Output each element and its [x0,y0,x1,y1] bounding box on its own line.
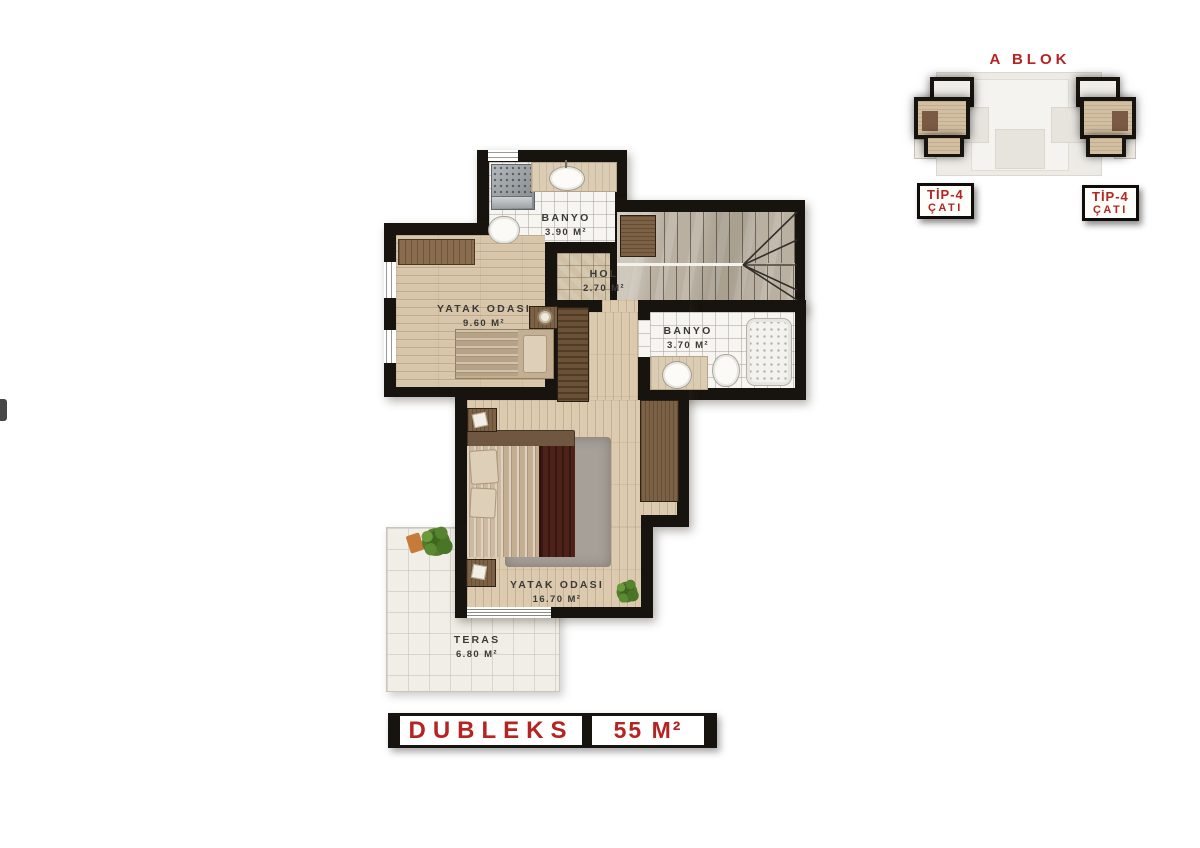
plan-type-box: DUBLEKS [400,716,582,745]
room-area: 3.70 M² [664,340,713,352]
room-name: YATAK ODASI [510,579,604,592]
block-overview: A BLOK TİP-4 [900,40,1170,230]
badge-type-label: TİP-4 [927,188,964,202]
bed-blanket [539,446,575,557]
room-name: BANYO [542,212,591,225]
window-bedroom1-bottom [384,330,396,363]
badge-roof-label: ÇATI [927,202,964,214]
pillow-icon [523,335,547,373]
room-label-yatak2: YATAK ODASI 16.70 M² [510,579,604,606]
type-badge-left: TİP-4 ÇATI [917,183,974,219]
decor-paper [472,412,489,429]
single-bed-blanket [456,330,518,376]
faded-room [995,129,1045,169]
highlighted-unit-right [1068,77,1136,157]
double-bed [467,430,573,557]
badge-roof-label: ÇATI [1092,204,1129,216]
pillow-icon [469,449,499,485]
room-area: 6.80 M² [454,649,501,661]
room-label-yatak1: YATAK ODASI 9.60 M² [437,303,531,330]
unit-bed [922,111,938,131]
decor-paper [471,564,487,580]
type-badge-right: TİP-4 ÇATI [1082,185,1139,221]
room-name: HOL [583,268,625,281]
bed-drape [501,446,539,557]
stairs [617,212,795,300]
room-label-banyo-lower: BANYO 3.70 M² [664,325,713,352]
plan-size-text: 55 M² [614,717,683,743]
floorplan-sheet: BANYO 3.90 M² HOL 2.70 M² YATAK ODASI 9.… [0,0,1200,848]
sink-upper-icon [549,166,585,191]
room-label-hol: HOL 2.70 M² [583,268,625,295]
block-title: A BLOK [990,51,1071,68]
room-area: 2.70 M² [583,283,625,295]
room-area: 3.90 M² [542,227,591,239]
toilet-upper-icon [488,216,520,244]
wall-step-bedroom2 [641,515,689,527]
room-area: 16.70 M² [510,594,604,606]
stair-landing-divider [617,263,745,266]
hall-door-opening [602,300,638,312]
highlighted-unit-left [914,77,982,157]
single-bed [455,329,554,379]
plan-type-text: DUBLEKS [408,717,573,744]
window-bedroom1-top [384,262,396,298]
unit-bed [1112,111,1128,131]
sink-lower-icon [662,361,692,389]
unit-room-low [928,138,960,154]
room-area: 9.60 M² [437,318,531,330]
badge-type-label: TİP-4 [1092,190,1129,204]
plan-title-bar: DUBLEKS 55 M² [388,713,717,748]
shower-roll [492,196,532,208]
window-bath-upper [488,150,518,161]
bath-lower-door-opening [638,320,650,357]
room-name: YATAK ODASI [437,303,531,316]
closet-bedroom2 [640,400,679,502]
wardrobe-bedroom2 [557,307,589,402]
potted-plant-bedroom-icon [612,577,642,607]
pillow-icon [469,487,497,518]
faucet-icon [565,160,567,168]
stair-hall-closet [620,215,656,257]
potted-plant-terrace-icon [414,524,458,560]
table-lamp-icon [537,309,553,325]
toilet-lower-icon [712,354,740,387]
bedroom1-sideboard [398,239,475,265]
sliding-door-terrace [467,607,551,618]
unit-room-low [1090,138,1122,154]
plan-size-box: 55 M² [592,716,704,745]
room-label-teras: TERAS 6.80 M² [454,634,501,661]
room-label-banyo-upper: BANYO 3.90 M² [542,212,591,239]
bathtub-icon [746,318,792,386]
room-name: BANYO [664,325,713,338]
room-name: TERAS [454,634,501,647]
stair-winder-lines [735,212,797,300]
